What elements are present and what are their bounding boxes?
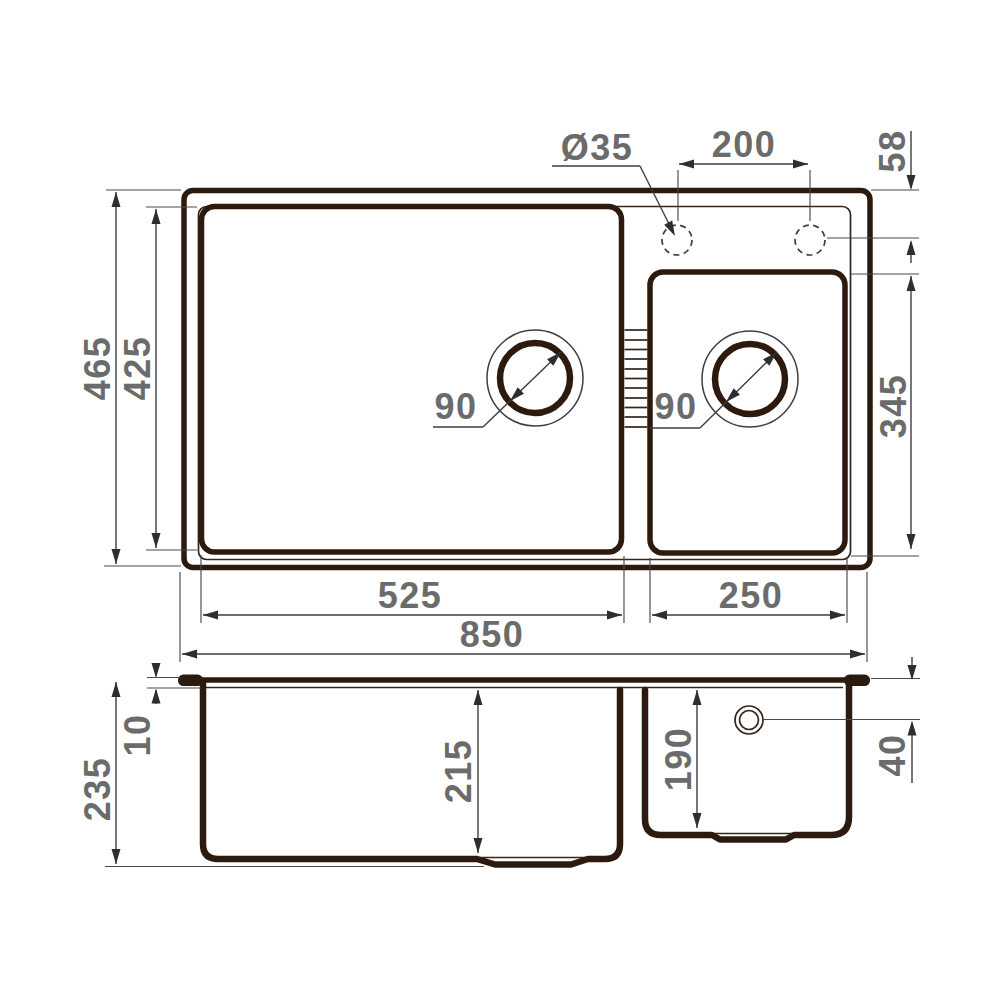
dim-main-bowl-length: 525: [378, 575, 443, 616]
dim-overall-height: 235: [77, 757, 118, 822]
side-view: 10 235 215 190: [77, 657, 920, 867]
dim-second-bowl-width: 345: [873, 374, 914, 439]
sink-technical-drawing: 90 90 Ø35 200: [0, 0, 1000, 1000]
dim-overall-width: 465: [77, 336, 118, 401]
tap-hole-1: [662, 225, 692, 255]
dim-main-bowl-width: 425: [117, 336, 158, 401]
dim-overall-length: 850: [460, 614, 525, 655]
second-drain: 90: [650, 331, 798, 428]
dim-main-drain-diameter: 90: [434, 386, 477, 427]
rim-left-lip: [178, 675, 203, 687]
dim-overall-height-group: 235: [77, 682, 484, 867]
main-bowl-outline: [202, 207, 622, 553]
inner-liner-outline: [199, 207, 851, 560]
overflow-hole: [735, 706, 763, 734]
dim-second-bowl-width-group: 345: [851, 274, 919, 556]
dim-tap-hole-diameter-group: Ø35: [552, 127, 679, 238]
dim-overflow-offset-group: 40: [763, 657, 920, 783]
dim-second-bowl-depth-group: 190: [658, 690, 702, 828]
dim-main-bowl-depth: 215: [438, 739, 479, 804]
top-view: 90 90 Ø35 200: [77, 124, 919, 662]
dim-rim-thickness: 10: [117, 713, 158, 756]
divider-grooves: [625, 330, 648, 427]
dim-tap-hole-offset-group: 58: [827, 129, 919, 263]
dim-tap-hole-diameter: Ø35: [561, 127, 634, 168]
dim-second-drain-diameter: 90: [654, 386, 697, 427]
dim-tap-hole-spacing: 200: [712, 124, 777, 165]
dim-tap-hole-offset: 58: [872, 129, 913, 172]
dim-main-bowl-depth-group: 215: [438, 690, 483, 853]
tap-hole-2: [795, 225, 825, 255]
outer-rim-outline: [184, 191, 870, 568]
main-bowl-section: [203, 683, 620, 865]
dim-overflow-offset: 40: [872, 733, 913, 776]
main-drain: 90: [433, 330, 583, 427]
dim-second-bowl-length: 250: [719, 575, 784, 616]
dim-second-bowl-depth: 190: [658, 727, 699, 792]
